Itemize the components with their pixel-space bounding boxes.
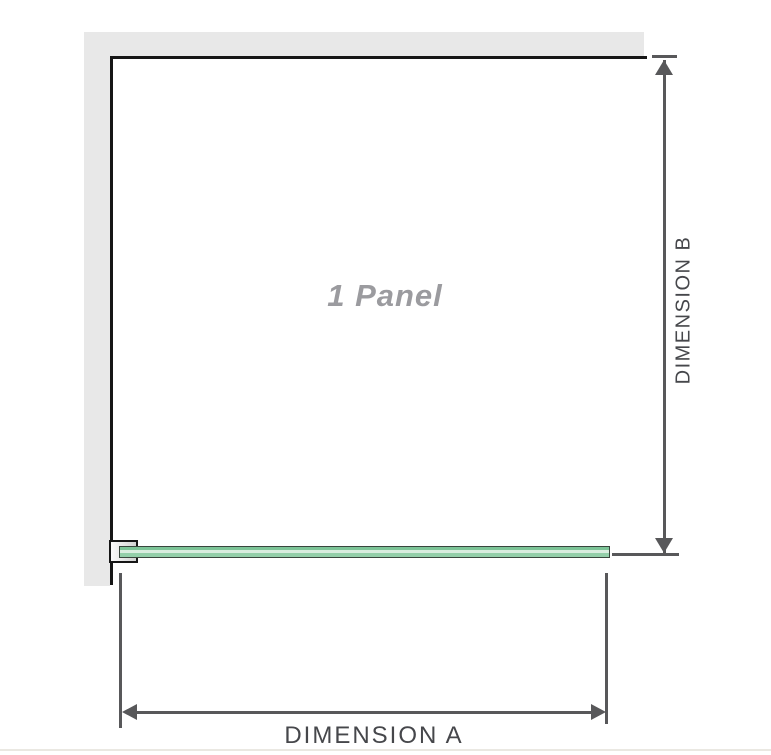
dimension-a-arrow-line bbox=[131, 711, 598, 714]
arrow-up-icon bbox=[655, 60, 673, 75]
panel-dimension-diagram: 1 Panel DIMENSION B DIMENSION A bbox=[0, 0, 771, 755]
arrow-left-icon bbox=[122, 704, 137, 720]
wall-top-strip bbox=[84, 32, 644, 57]
dimension-b-top-tick bbox=[652, 55, 677, 58]
panel-frame-top-edge bbox=[110, 56, 647, 59]
arrow-down-icon bbox=[655, 538, 673, 553]
dimension-b-bottom-tick bbox=[612, 553, 679, 556]
bottom-divider bbox=[0, 749, 771, 751]
panel-count-label: 1 Panel bbox=[327, 278, 443, 314]
panel-frame-left-edge bbox=[110, 56, 113, 585]
arrow-right-icon bbox=[591, 704, 606, 720]
wall-left-strip bbox=[84, 32, 110, 586]
dimension-a-label: DIMENSION A bbox=[284, 722, 463, 750]
dimension-b-arrow-line bbox=[663, 60, 666, 554]
dimension-b-label: DIMENSION B bbox=[673, 236, 696, 385]
dimension-a-right-extension-line bbox=[605, 573, 608, 724]
glass-panel-bar bbox=[119, 546, 610, 558]
